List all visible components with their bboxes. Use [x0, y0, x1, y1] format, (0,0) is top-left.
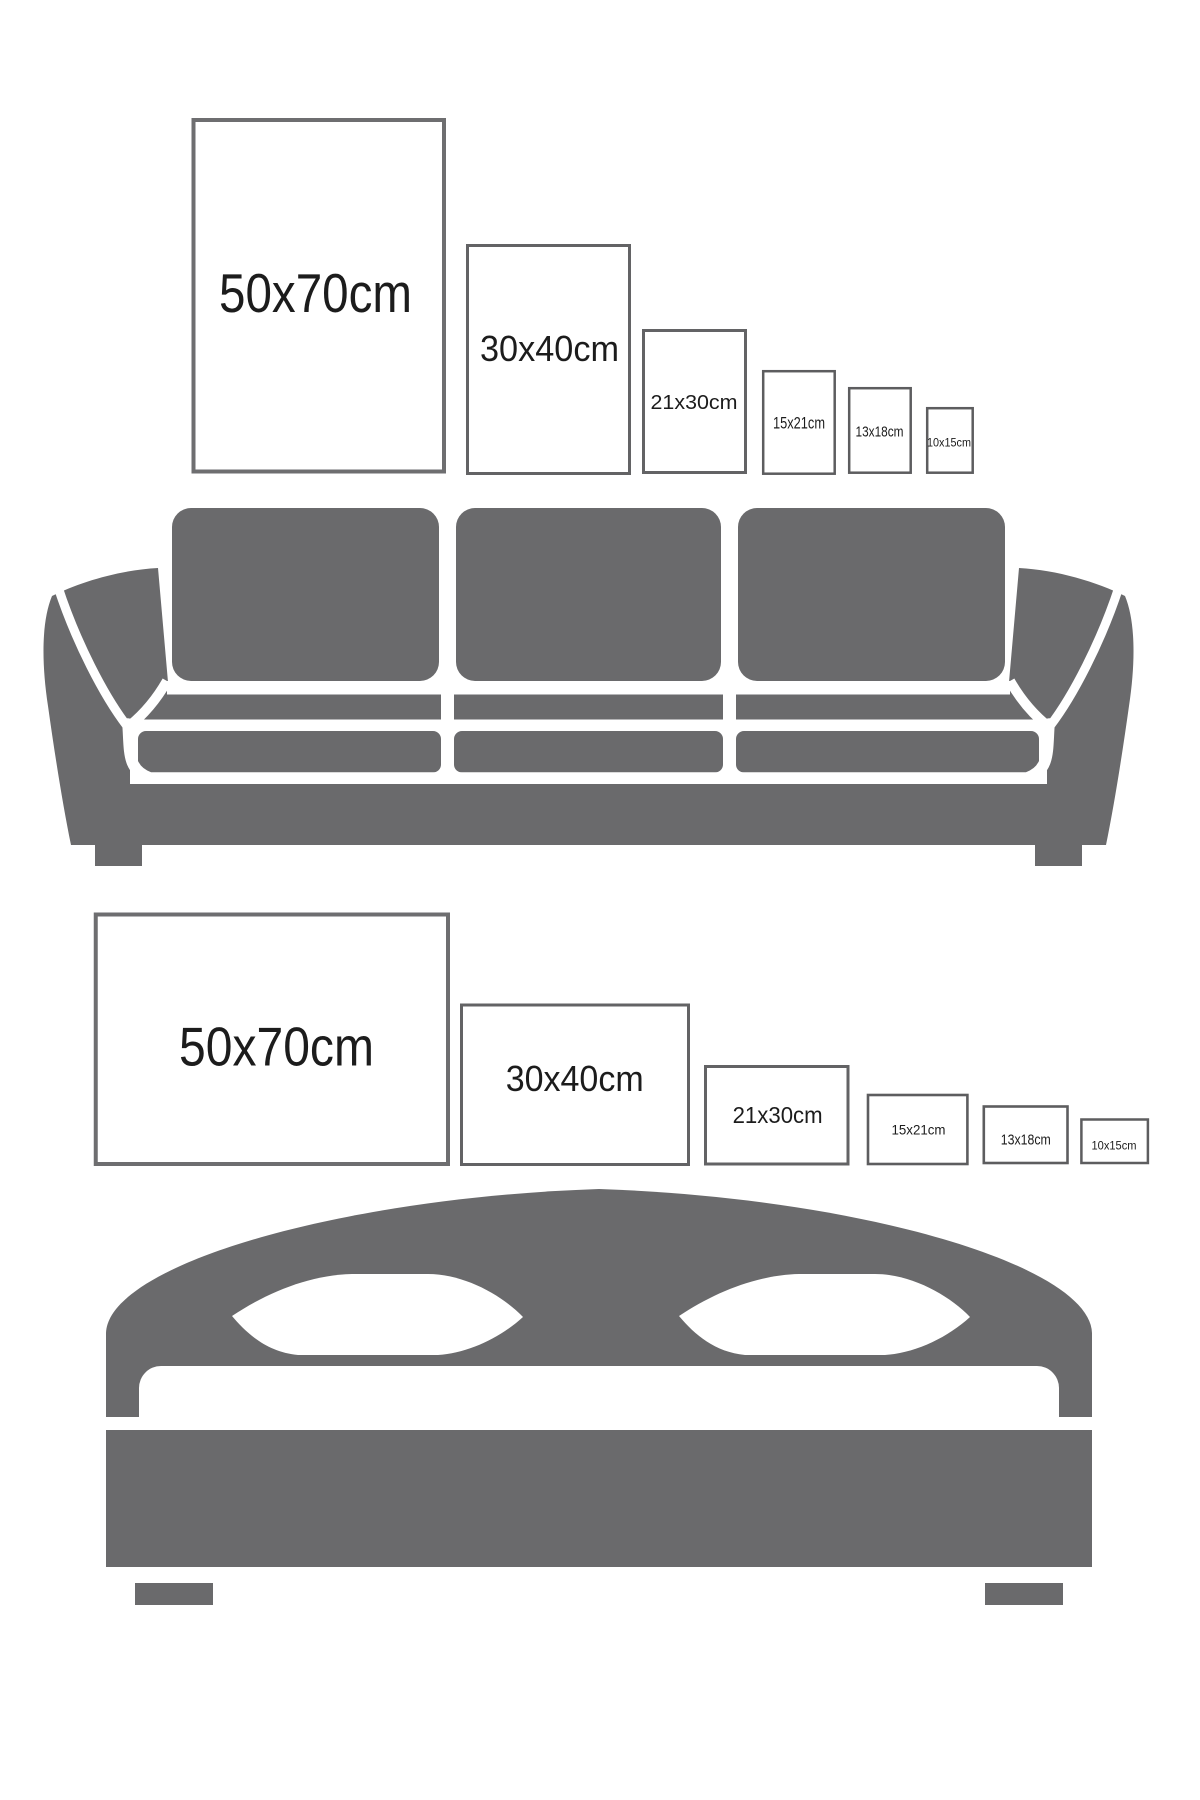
svg-text:10x15cm: 10x15cm [927, 438, 971, 450]
svg-text:30x40cm: 30x40cm [480, 328, 619, 369]
svg-text:15x21cm: 15x21cm [892, 1122, 946, 1138]
svg-text:10x15cm: 10x15cm [1092, 1139, 1137, 1153]
svg-text:21x30cm: 21x30cm [733, 1102, 823, 1128]
svg-text:30x40cm: 30x40cm [506, 1058, 644, 1099]
svg-text:13x18cm: 13x18cm [856, 425, 904, 441]
svg-text:21x30cm: 21x30cm [651, 391, 738, 414]
svg-text:50x70cm: 50x70cm [179, 1016, 374, 1078]
svg-text:15x21cm: 15x21cm [773, 414, 825, 432]
svg-text:50x70cm: 50x70cm [219, 262, 412, 324]
svg-text:13x18cm: 13x18cm [1001, 1132, 1051, 1148]
